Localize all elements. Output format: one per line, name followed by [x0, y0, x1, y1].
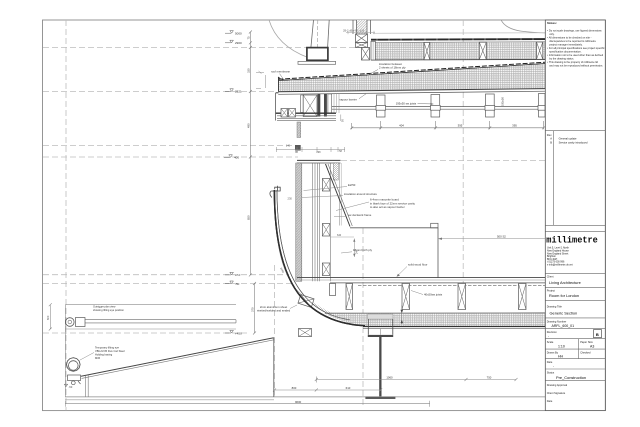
svg-text:rivetted/welded and sealed: rivetted/welded and sealed	[257, 309, 291, 313]
svg-text:Notes:: Notes:	[547, 21, 557, 25]
svg-text:Drawing Number: Drawing Number	[547, 320, 567, 324]
svg-text:-50: -50	[235, 282, 240, 286]
svg-text:Checked: Checked	[580, 350, 591, 354]
svg-text:showing lifting eye position: showing lifting eye position	[93, 308, 124, 312]
svg-text:A3: A3	[590, 345, 594, 349]
svg-text:850: 850	[246, 215, 250, 220]
svg-text:• Do not scale drawings, use f: • Do not scale drawings, use figured dim…	[547, 28, 602, 32]
svg-text:2B-2 dB +90 - p18: 2B-2 dB +90 - p18	[343, 29, 365, 33]
svg-text:Paper Size: Paper Size	[580, 340, 593, 344]
svg-text:General update: General update	[559, 137, 577, 141]
svg-text:1:10: 1:10	[558, 345, 565, 349]
svg-text:• Information not to be used o: • Information not to be used other than …	[547, 53, 603, 57]
svg-text:Drawing Approval: Drawing Approval	[547, 383, 568, 387]
svg-text:-: -	[548, 334, 549, 338]
svg-text:640: 640	[337, 234, 342, 237]
svg-text:Room for London: Room for London	[549, 293, 579, 298]
svg-text:Outrigger plan view: Outrigger plan view	[93, 305, 115, 309]
svg-text:400: 400	[234, 156, 239, 160]
svg-text:Service cavity introduced: Service cavity introduced	[559, 141, 588, 145]
svg-text:75: 75	[246, 36, 250, 39]
svg-text:5000: 5000	[235, 32, 242, 36]
svg-text:+450: +450	[235, 331, 242, 335]
svg-text:Client Signature: Client Signature	[547, 391, 566, 395]
svg-text:610: 610	[346, 386, 351, 390]
svg-text:and may not be reproduced with: and may not be reproduced without permis…	[549, 63, 603, 67]
svg-text:millimetre: millimetre	[546, 234, 598, 245]
svg-text:discrepancies to be reported t: discrepancies to be reported to millimet…	[549, 39, 596, 43]
svg-text:Rev: Rev	[547, 133, 552, 137]
svg-text:B: B	[550, 141, 552, 145]
svg-text:by the drawing status.: by the drawing status.	[549, 56, 574, 60]
svg-text:2 sheets of 18mm ply: 2 sheets of 18mm ply	[379, 66, 406, 70]
svg-text:395: 395	[458, 123, 463, 127]
svg-text:solid wood floor: solid wood floor	[408, 263, 428, 267]
svg-text:Client: Client	[547, 275, 554, 279]
svg-text:E2/50: E2/50	[348, 183, 356, 187]
svg-text:sw ductwork frame: sw ductwork frame	[348, 213, 372, 217]
svg-text:18mm birch ply: 18mm birch ply	[353, 248, 373, 252]
svg-text:specification documentation.: specification documentation.	[549, 49, 581, 53]
svg-text:195x50: 195x50	[501, 97, 505, 106]
svg-text:Project: Project	[547, 288, 555, 292]
svg-text:• For all principal specificat: • For all principal specifications see p…	[547, 46, 605, 50]
svg-text:M36: M36	[95, 356, 101, 360]
svg-text:40x50sw joists: 40x50sw joists	[424, 293, 443, 297]
svg-text:230: 230	[288, 196, 293, 200]
svg-text:395: 395	[512, 123, 517, 127]
svg-text:roof membrane: roof membrane	[271, 70, 290, 74]
svg-text:2521: 2521	[235, 90, 242, 94]
svg-text:490: 490	[246, 123, 250, 128]
svg-text:+/-0: +/-0	[235, 273, 241, 277]
svg-text:B: B	[596, 332, 599, 337]
svg-text:600: 600	[46, 315, 50, 320]
svg-text:330: 330	[246, 68, 250, 73]
svg-text:Status: Status	[547, 371, 555, 375]
svg-text:Generic Section: Generic Section	[550, 311, 578, 316]
svg-text:ARFL_600_01: ARFL_600_01	[552, 324, 575, 328]
svg-text:• All dimensions to be checked: • All dimensions to be checked on site -	[547, 35, 591, 39]
svg-text:195x50 sw joists: 195x50 sw joists	[396, 102, 417, 106]
svg-text:404: 404	[399, 123, 404, 127]
svg-text:vapour barrier: vapour barrier	[339, 98, 356, 102]
svg-text:HH: HH	[558, 355, 564, 359]
svg-text:500 S2: 500 S2	[497, 235, 506, 239]
svg-text:Date: Date	[547, 360, 553, 364]
svg-text:• This drawing is the property: • This drawing is the property of millim…	[547, 60, 598, 64]
svg-text:370: 370	[250, 307, 254, 312]
svg-text:750: 750	[487, 375, 492, 379]
svg-text:Date: Date	[547, 399, 553, 403]
svg-text:2900: 2900	[235, 41, 242, 45]
svg-text:A: A	[550, 137, 552, 141]
svg-text:project manager immediately.: project manager immediately.	[549, 42, 583, 46]
svg-text:VBG-M 05 Five Cwt Steel: VBG-M 05 Five Cwt Steel	[95, 349, 125, 353]
svg-text:Temporary lifting eye: Temporary lifting eye	[95, 345, 119, 349]
svg-text:-: -	[553, 364, 554, 368]
svg-text:Pre_Construction: Pre_Construction	[556, 375, 586, 380]
svg-text:140: 140	[286, 144, 291, 147]
svg-text:Drawing Title: Drawing Title	[547, 305, 563, 309]
svg-text:e info@millimetre.uk.net: e info@millimetre.uk.net	[547, 264, 573, 267]
svg-text:1060: 1060	[386, 375, 393, 379]
svg-text:Drawn By: Drawn By	[547, 350, 559, 354]
svg-text:only.: only.	[549, 32, 554, 36]
svg-text:298: 298	[316, 151, 321, 154]
svg-text:insulation around structure: insulation around structure	[344, 192, 377, 196]
svg-text:-50: -50	[69, 386, 73, 389]
svg-text:Living Architecture: Living Architecture	[549, 280, 581, 285]
svg-text:to also act as vapour barrier: to also act as vapour barrier	[370, 205, 405, 209]
svg-text:Holding basing: Holding basing	[95, 352, 113, 356]
svg-text:Scale: Scale	[547, 340, 554, 344]
svg-text:9600: 9600	[295, 400, 302, 404]
svg-text:800: 800	[292, 386, 297, 390]
